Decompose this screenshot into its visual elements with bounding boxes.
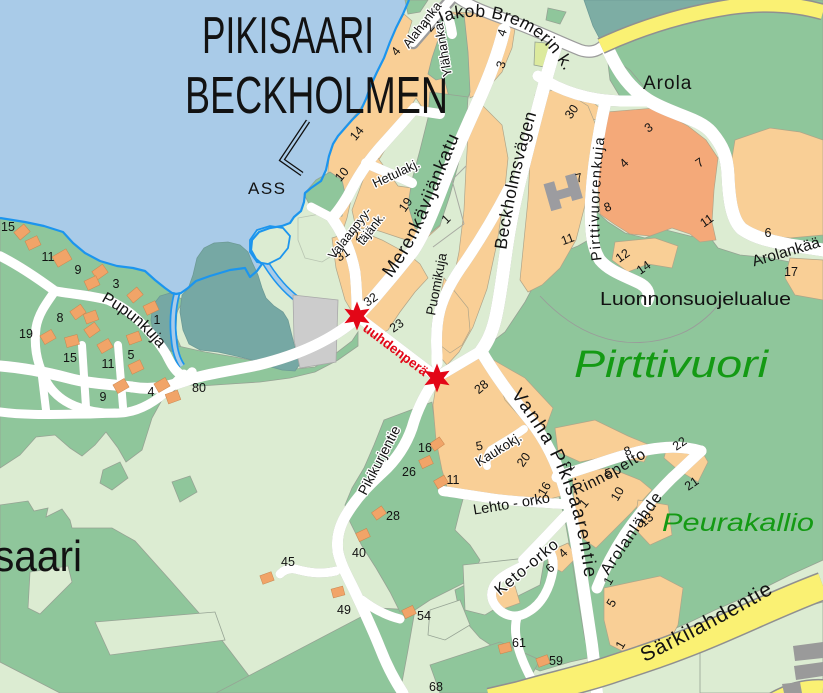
svg-text:49: 49 (337, 603, 351, 617)
svg-text:54: 54 (417, 609, 431, 623)
svg-text:Pirttivuori: Pirttivuori (574, 344, 770, 386)
svg-text:1: 1 (154, 313, 161, 327)
svg-text:61: 61 (512, 636, 526, 650)
svg-text:26: 26 (402, 465, 416, 479)
svg-text:15: 15 (63, 351, 77, 365)
svg-text:4: 4 (148, 385, 155, 399)
svg-text:59: 59 (549, 654, 563, 668)
svg-text:6: 6 (765, 226, 772, 240)
svg-text:8: 8 (57, 311, 64, 325)
svg-text:45: 45 (281, 555, 295, 569)
svg-text:11: 11 (42, 250, 55, 264)
svg-text:28: 28 (386, 509, 400, 523)
svg-text:Arola: Arola (643, 73, 692, 94)
svg-text:11: 11 (447, 473, 460, 487)
svg-text:ASS: ASS (248, 179, 287, 198)
svg-text:19: 19 (19, 327, 33, 341)
svg-text:9: 9 (75, 263, 82, 277)
svg-text:15: 15 (1, 220, 15, 234)
svg-text:11: 11 (102, 357, 115, 371)
svg-text:saari: saari (0, 532, 82, 581)
svg-text:17: 17 (784, 265, 798, 279)
svg-text:BECKHOLMEN: BECKHOLMEN (185, 67, 448, 125)
svg-text:PIKISAARI: PIKISAARI (202, 7, 374, 65)
svg-text:Peurakallio: Peurakallio (662, 509, 814, 537)
svg-text:40: 40 (352, 546, 366, 560)
svg-text:68: 68 (429, 680, 443, 693)
svg-text:9: 9 (100, 390, 107, 404)
svg-text:16: 16 (418, 441, 432, 455)
svg-text:5: 5 (128, 348, 135, 362)
svg-text:80: 80 (192, 381, 206, 395)
svg-text:Luonnonsuojelualue: Luonnonsuojelualue (600, 288, 791, 309)
svg-text:3: 3 (113, 277, 120, 291)
